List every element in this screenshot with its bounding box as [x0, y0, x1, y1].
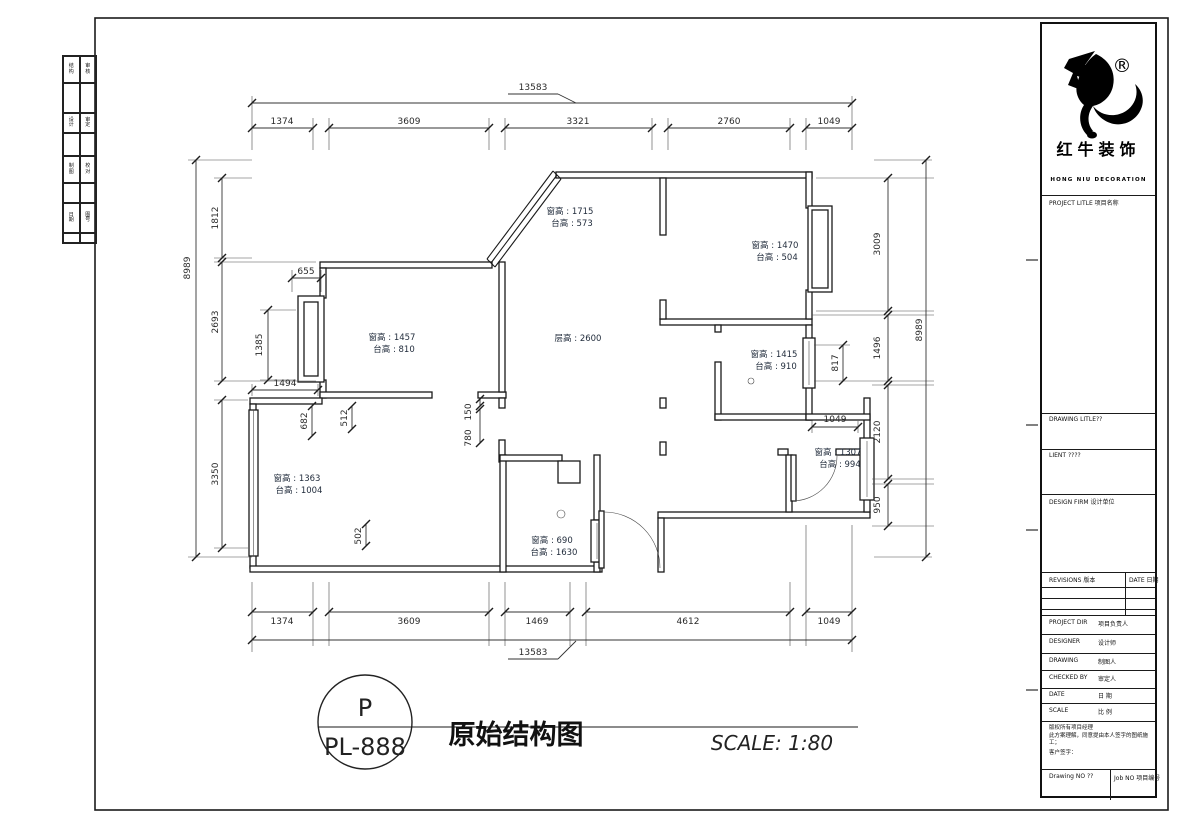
strip-label: 图号 [85, 213, 91, 224]
dim-label: 512 [340, 409, 350, 426]
field-client: LIENT ???? [1049, 452, 1081, 459]
date-column-header: DATE 日期 [1129, 575, 1159, 584]
scale-text: SCALE: 1:80 [711, 731, 833, 755]
strip-label: 制图 [68, 164, 74, 175]
window-label: 窗高 : 1457 [369, 332, 416, 343]
dim-label: 3609 [398, 617, 421, 627]
room-annotations: 窗高 : 1715 台高 : 573 窗高 : 1470 台高 : 504 窗高… [274, 206, 862, 558]
dim-label: 1812 [211, 207, 221, 230]
dim-top-total: 13583 [519, 83, 548, 93]
badge-letter: P [358, 694, 372, 722]
dim-label: 150 [464, 403, 474, 420]
strip-label: 审核 [85, 64, 91, 75]
field-project-dir: PROJECT DIR [1049, 619, 1087, 626]
dim-label: 3609 [398, 117, 421, 127]
field-scale-zh: 比 例 [1098, 707, 1112, 716]
dim-label: 1374 [271, 617, 294, 627]
floorplan-canvas: 13583 1374 3609 3321 2760 1049 1374 3609 [0, 0, 1200, 824]
field-designer-zh: 设计师 [1098, 638, 1116, 647]
strip-cell: 日期 [63, 203, 80, 233]
field-date: DATE [1049, 691, 1065, 698]
strip-cell [63, 133, 80, 156]
entry-door-arc [604, 512, 660, 568]
field-drawing-title: DRAWING LITLE?? [1049, 416, 1102, 423]
dim-interior: 655 1494 682 512 150 780 502 817 1049 [248, 267, 862, 550]
revisions-header: REVISIONS 版本 [1049, 575, 1095, 584]
strip-cell: 图号 [80, 203, 97, 233]
field-drawing-no: Drawing NO ?? [1049, 773, 1093, 780]
title-block: ® 红牛装饰 HONG NIU DECORATION PROJECT LITLE… [1040, 22, 1157, 798]
dim-right-total: 8989 [915, 318, 925, 341]
field-job-no: Job NO 项目编号 [1114, 773, 1160, 782]
sill-label: 台高 : 573 [551, 218, 593, 229]
brand-subtitle: HONG NIU DECORATION [1042, 177, 1155, 183]
strip-cell [63, 183, 80, 203]
dim-label: 1494 [274, 379, 297, 389]
dim-label: 1049 [818, 617, 841, 627]
strip-cell: 审定 [80, 113, 97, 133]
strip-cell: 校对 [80, 156, 97, 183]
badge-number: PL-888 [324, 733, 406, 761]
field-design-firm: DESIGN FIRM 设计单位 [1049, 497, 1115, 506]
dim-label: 2120 [873, 420, 883, 443]
field-project-title: PROJECT LITLE 项目名称 [1049, 198, 1119, 207]
field-designer: DESIGNER [1049, 638, 1080, 645]
drain-symbol [557, 510, 565, 518]
dim-label: 655 [297, 267, 314, 277]
dim-label: 2760 [718, 117, 741, 127]
field-project-dir-zh: 项目负责人 [1098, 619, 1128, 628]
field-checked-by: CHECKED BY [1049, 674, 1087, 681]
dim-label: 3321 [567, 117, 590, 127]
balcony-door-leaf [791, 455, 796, 501]
dim-label: 1049 [824, 415, 847, 425]
floor-height-label: 层高 : 2600 [555, 333, 602, 344]
window-label: 窗高 : 1307 [815, 447, 862, 458]
field-scale: SCALE [1049, 707, 1068, 714]
dim-label: 2693 [211, 311, 221, 334]
dim-label: 950 [873, 496, 883, 513]
dim-label: 502 [354, 527, 364, 544]
dim-label: 1374 [271, 117, 294, 127]
sill-label: 台高 : 504 [756, 252, 798, 263]
field-drawing-by-zh: 制图人 [1098, 657, 1116, 666]
drain-symbol [748, 378, 754, 384]
strip-label: 结构 [68, 64, 74, 75]
window-label: 窗高 : 1415 [751, 349, 798, 360]
strip-cell [80, 183, 97, 203]
dim-label: 3350 [211, 462, 221, 485]
strip-cell [80, 233, 97, 243]
strip-label: 日期 [68, 213, 74, 224]
sill-label: 台高 : 910 [755, 361, 797, 372]
window-label: 窗高 : 1470 [752, 240, 799, 251]
strip-cell: 制图 [63, 156, 80, 183]
registered-mark-icon: ® [1113, 55, 1132, 77]
strip-cell: 设计 [63, 113, 80, 133]
brand-name: 红牛装饰 [1042, 136, 1155, 160]
plan-symbols [557, 378, 754, 518]
dim-label: 1049 [818, 117, 841, 127]
strip-label: 校对 [85, 164, 91, 175]
dim-label: 817 [831, 354, 841, 371]
client-signature-label: 客户签字： [1049, 750, 1152, 757]
dim-label: 1496 [873, 336, 883, 359]
strip-cell: 审核 [80, 56, 97, 83]
footer-title: P PL-888 原始结构图 SCALE: 1:80 [318, 675, 858, 769]
sill-label: 台高 : 1004 [276, 485, 323, 496]
window-label: 窗高 : 1363 [274, 473, 321, 484]
sill-label: 台高 : 810 [373, 344, 415, 355]
strip-label: 审定 [85, 118, 91, 129]
dim-label: 682 [300, 412, 310, 429]
strip-cell: 结构 [63, 56, 80, 83]
field-drawing-by: DRAWING [1049, 657, 1078, 664]
strip-cell [63, 83, 80, 113]
strip-cell [80, 133, 97, 156]
window-label: 窗高 : 1715 [547, 206, 594, 217]
entry-door-leaf [599, 511, 604, 568]
dim-label: 780 [464, 429, 474, 446]
brand-logo: ® [1042, 38, 1155, 148]
field-checked-by-zh: 审定人 [1098, 674, 1116, 683]
sill-label: 台高 : 994 [819, 459, 861, 470]
dim-label: 1385 [255, 334, 265, 357]
dim-bottom-total: 13583 [519, 648, 548, 658]
dim-label: 3009 [873, 232, 883, 255]
window-label: 窗高 : 690 [531, 535, 573, 546]
cad-sheet: 13583 1374 3609 3321 2760 1049 1374 3609 [0, 0, 1200, 824]
dim-left-total: 8989 [183, 256, 193, 279]
copyright-note-1: 版权所有项目经理 [1049, 725, 1152, 732]
strip-cell [80, 83, 97, 113]
dim-top: 13583 1374 3609 3321 2760 1049 [248, 83, 856, 150]
copyright-note-2: 此方案理解，同意提由本人签字的图纸施工； [1049, 733, 1152, 747]
strip-cell [63, 233, 80, 243]
strip-label: 设计 [68, 118, 74, 129]
dim-label: 4612 [677, 617, 700, 627]
sill-label: 台高 : 1630 [531, 547, 578, 558]
field-date-zh: 日 期 [1098, 691, 1112, 700]
signature-strip: 结构 审核 设计 审定 制图 校对 日期 图号 [62, 55, 97, 244]
dim-label: 1469 [526, 617, 549, 627]
drawing-title: 原始结构图 [449, 719, 584, 751]
